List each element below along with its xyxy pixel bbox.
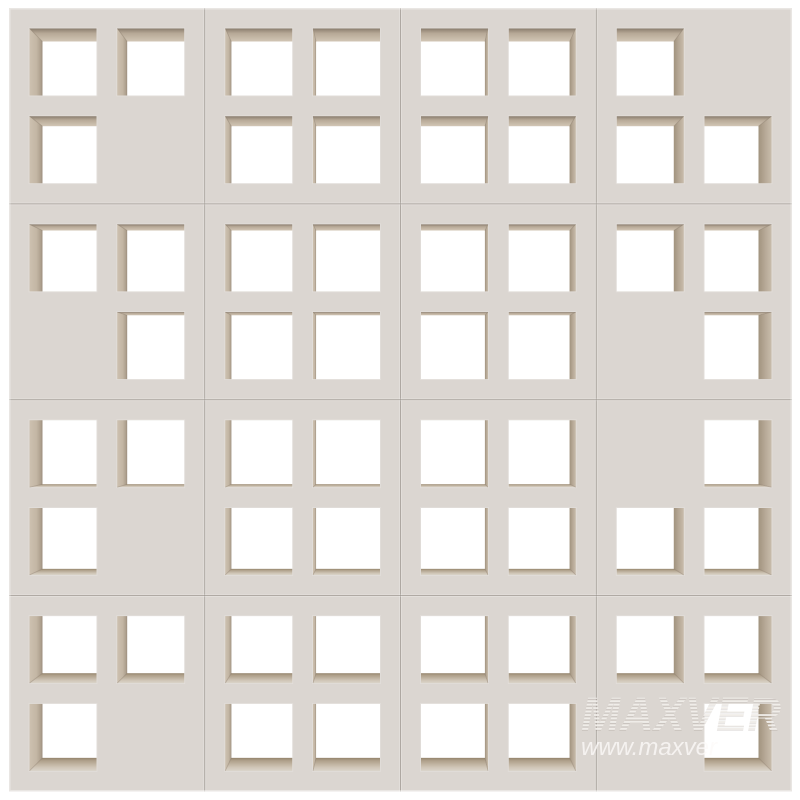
svg-text:www.maxver: www.maxver [581, 734, 718, 761]
